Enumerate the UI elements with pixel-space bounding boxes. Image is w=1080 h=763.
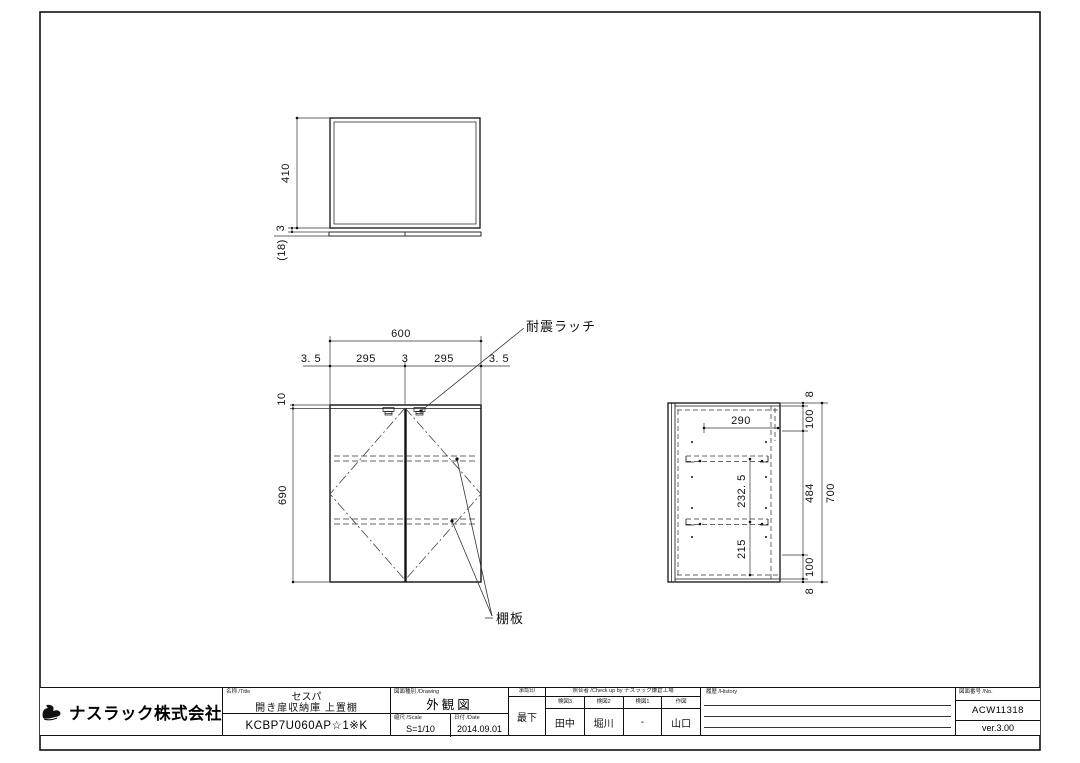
dim-side-shelf-depth: 290 [731, 415, 751, 427]
checker-col: 作図 山口 [661, 697, 700, 735]
drawing-sheet: 410 3 (18) 600 [0, 0, 1080, 763]
checker-col: 検図1 - [623, 697, 662, 735]
dim-top-gap: 3 [275, 225, 287, 232]
scale-label: 縮尺 /Scale [394, 716, 422, 722]
number-label: 図面番号 /No. [959, 690, 993, 696]
title-block: ナスラック株式会社 名称 /Title セスパ 開き扉収納庫 上置棚 KCBP7… [40, 687, 1040, 736]
dim-side-bottom-thickness: 8 [804, 588, 816, 595]
drawing-type-cell: 図面種別 /Drawing 外観図 縮尺 /Scale S=1/10 日付 /D… [390, 688, 508, 735]
front-view: 600 3. 5 295 3 295 3. 5 10 690 耐震ラッチ 棚 [276, 319, 596, 626]
dim-front-door-right: 295 [434, 353, 454, 365]
sheet-border [40, 12, 1040, 750]
scale-value: S=1/10 [391, 722, 450, 736]
company-name: ナスラック株式会社 [69, 700, 222, 724]
dim-front-width: 600 [391, 328, 411, 340]
shelf-label: 棚板 [496, 611, 524, 626]
approval-value: 最下 [509, 697, 545, 735]
checker-name: 堀川 [585, 709, 623, 735]
checker-role: 検図3 [546, 697, 584, 709]
checker-name: 山口 [662, 709, 700, 735]
date-value: 2014.09.01 [450, 722, 509, 736]
swan-logo-icon [40, 702, 64, 722]
dim-front-door-left: 295 [356, 353, 376, 365]
model-number: KCBP7U060AP☆1※K [223, 714, 390, 735]
checker-col: 検図3 田中 [546, 697, 584, 735]
latch-label: 耐震ラッチ [526, 319, 596, 334]
approval-label: 承認印 [509, 688, 545, 697]
history-label: 履歴 /History [706, 690, 737, 696]
dim-front-center-gap: 3 [402, 353, 409, 365]
dim-front-top-rail: 10 [276, 392, 288, 405]
checker-name: 田中 [546, 709, 584, 735]
date-label: 日付 /Date [454, 716, 480, 722]
dim-side-bottom-offset: 100 [804, 557, 816, 577]
checker-col: 検図2 堀川 [584, 697, 623, 735]
dim-side-top-offset: 100 [804, 409, 816, 429]
checkup-label: 照合者 /Check up by ナスラック鎌倉工場 [546, 688, 700, 697]
dim-front-height: 690 [277, 485, 289, 505]
dim-top-door: (18) [276, 239, 288, 261]
checkers-cell: 照合者 /Check up by ナスラック鎌倉工場 検図3 田中 検図2 堀川… [545, 688, 700, 735]
checker-name: - [624, 709, 662, 735]
side-view: 290 232. 5 215 8 100 484 100 8 700 [668, 391, 837, 595]
company-logo: ナスラック株式会社 [40, 688, 222, 735]
dim-side-total-height: 700 [825, 483, 837, 503]
drawing-canvas: 410 3 (18) 600 [0, 0, 1080, 763]
dim-side-top-thickness: 8 [804, 391, 816, 398]
drawing-number: ACW11318 [956, 700, 1040, 720]
dim-front-edge-right: 3. 5 [489, 353, 509, 365]
dim-side-mid-span: 484 [804, 483, 816, 503]
dim-side-bottom-spacing: 215 [736, 539, 748, 559]
name-cell: 名称 /Title セスパ 開き扉収納庫 上置棚 KCBP7U060AP☆1※K [222, 688, 390, 735]
number-cell: 図面番号 /No. ACW11318 ver.3.00 [955, 688, 1040, 735]
dim-side-shelf-spacing: 232. 5 [736, 474, 748, 508]
history-cell: 履歴 /History [700, 688, 955, 735]
checker-role: 作図 [662, 697, 700, 709]
top-view: 410 3 (18) [274, 117, 481, 261]
dim-top-depth: 410 [280, 163, 292, 183]
checker-role: 検図2 [585, 697, 623, 709]
product-name: 開き扉収納庫 上置棚 [223, 700, 390, 712]
drawing-type-value: 外観図 [391, 694, 508, 712]
version: ver.3.00 [956, 720, 1040, 735]
approval-cell: 承認印 最下 [508, 688, 545, 735]
checker-role: 検図1 [624, 697, 662, 709]
dim-front-edge-left: 3. 5 [301, 353, 321, 365]
